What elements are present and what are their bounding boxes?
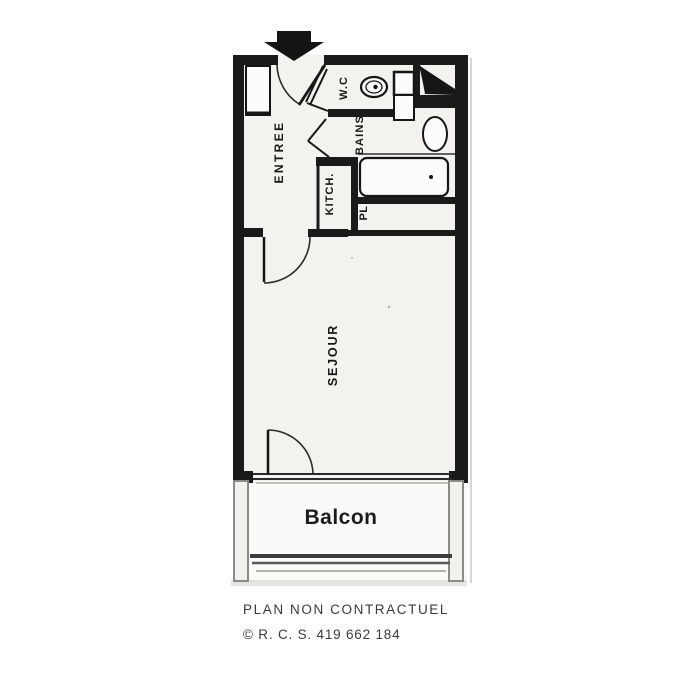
wall-left (233, 55, 244, 483)
scan-speckle (388, 306, 390, 308)
room-label-kitchen: KITCH. (324, 173, 336, 216)
room-label-bains: BAINS (354, 115, 366, 155)
balcony-wall-left (234, 481, 248, 581)
room-label-wc: W.C (338, 76, 350, 100)
floor-plan-drawing: ENTREE W.C BAINS KITCH. PL SEJOUR Balcon… (0, 0, 700, 700)
balcony-wall-right (449, 481, 463, 581)
room-label-balcony: Balcon (304, 506, 377, 529)
floor-plan-page: ENTREE W.C BAINS KITCH. PL SEJOUR Balcon… (0, 0, 700, 700)
bathtub-icon (358, 154, 455, 196)
footer-registration: © R. C. S. 419 662 184 (243, 627, 400, 642)
wall-top-right (324, 55, 468, 65)
wall-sejour-top-right (348, 230, 468, 236)
room-label-entree: ENTREE (272, 120, 286, 183)
wall-bath-bottom (358, 197, 468, 204)
scan-speckle (351, 257, 353, 259)
room-label-sejour: SEJOUR (326, 324, 340, 386)
wall-shaft-bottom (413, 95, 468, 108)
scan-smudge-bottom (231, 580, 467, 586)
wall-kitchen-right (351, 157, 358, 233)
wall-top-left (233, 55, 278, 65)
balcony-paper (233, 481, 467, 583)
wall-sejour-top-left (233, 228, 263, 237)
wall-sejour-top-mid (308, 229, 348, 237)
washbasin-icon (423, 117, 447, 151)
wardrobe (246, 66, 270, 115)
wall-right (455, 55, 468, 483)
footer-disclaimer: PLAN NON CONTRACTUEL (243, 602, 449, 617)
room-label-closet: PL (358, 205, 370, 220)
